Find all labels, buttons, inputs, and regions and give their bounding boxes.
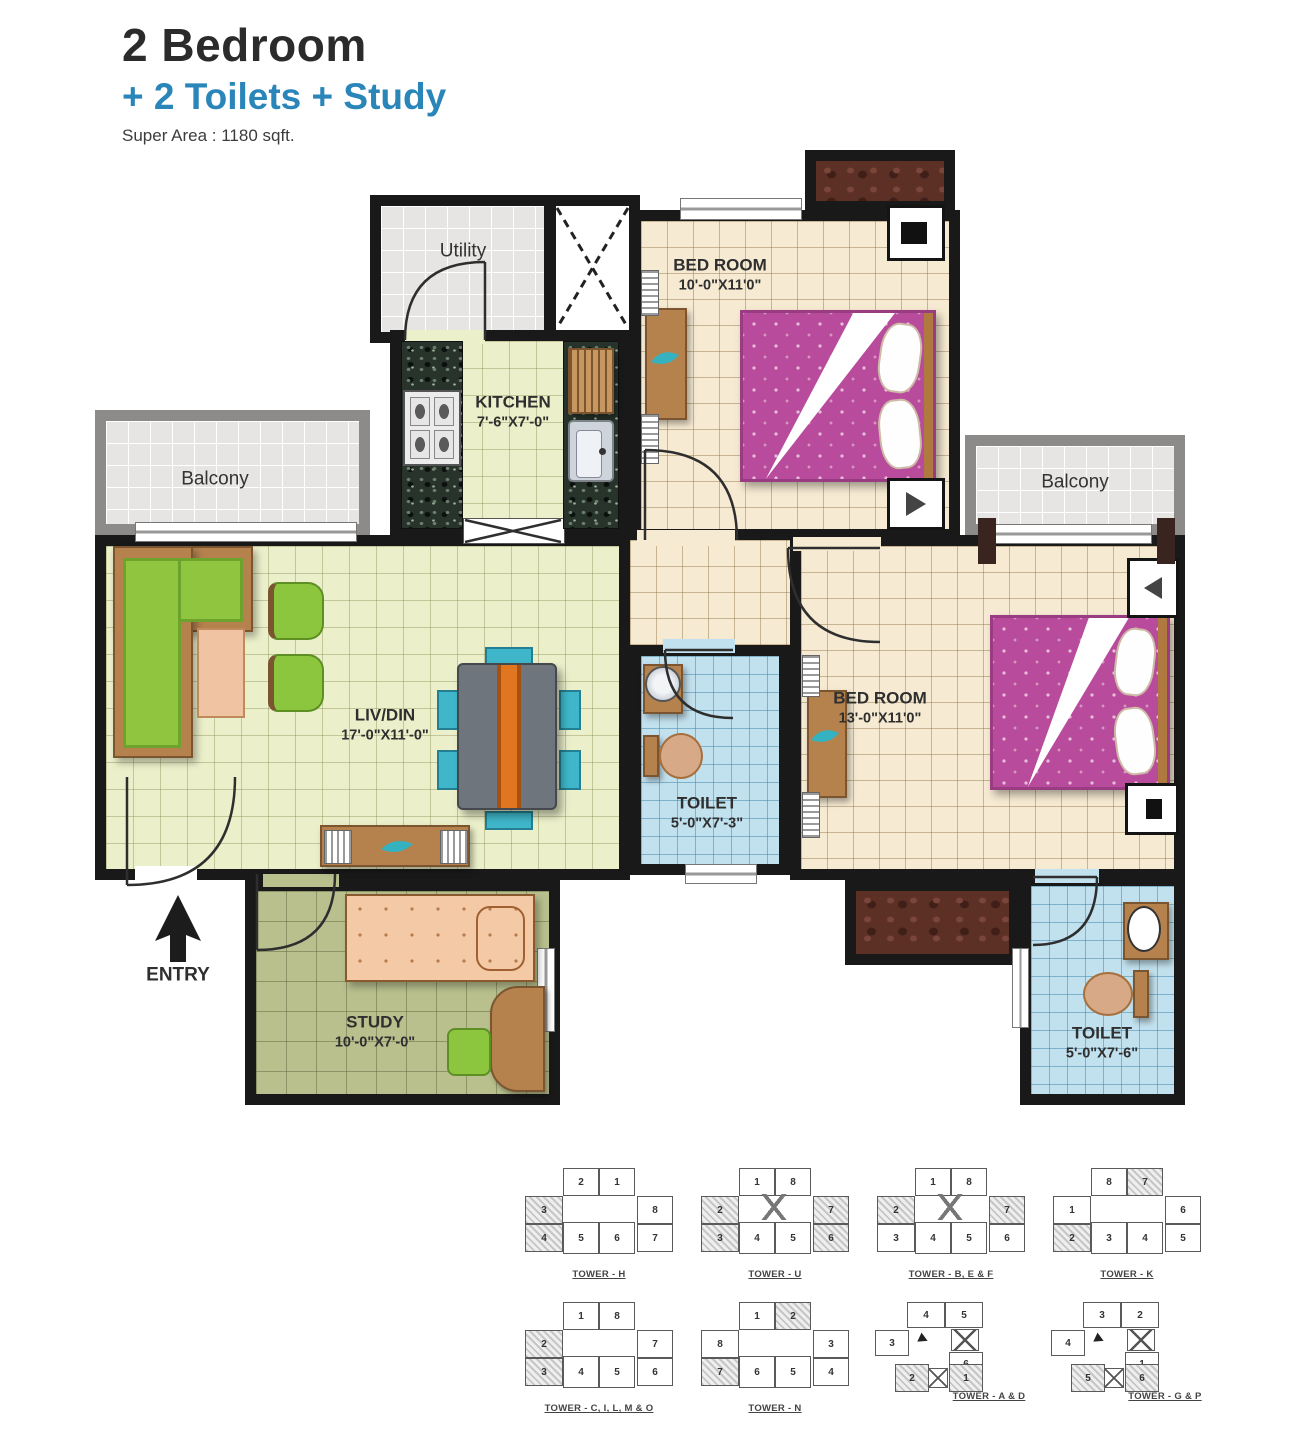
tower-unit: 2 [775,1302,811,1330]
dresser-shutter [641,270,659,316]
tower-unit: 4 [563,1356,599,1388]
pillow [1111,705,1159,777]
arrow-icon [1093,1333,1105,1346]
pillow [875,397,924,471]
tower-unit: 5 [599,1356,635,1388]
header: 2 Bedroom + 2 Toilets + Study Super Area… [122,18,446,146]
bedroom1-tv-unit [887,205,945,261]
tower-unit: 3 [525,1196,563,1224]
entry-label: ENTRY [146,964,210,989]
bedroom1-ac-unit [887,478,945,530]
study-label: STUDY 10'-0"X7'-0" [335,1012,415,1053]
ac-icon [1142,799,1162,819]
tower-unit: 2 [877,1196,915,1224]
study-bed [345,894,535,982]
room-utility [370,195,555,343]
burner-icon [410,430,430,459]
tower-diagram: 12876534TOWER - N [694,1300,856,1428]
bedroom2-tv-unit [1127,558,1179,618]
tower-canvas: 87123465 [1051,1168,1203,1264]
tower-unit: 7 [813,1196,849,1224]
tower-unit: 1 [739,1168,775,1196]
bed-headboard [1158,618,1167,787]
tower-unit: 1 [949,1364,983,1392]
tower-unit: 6 [989,1224,1025,1252]
tv-icon [1144,577,1162,599]
toilet1-cistern [643,735,659,777]
sofa-seat [123,558,181,748]
tower-unit: 5 [775,1356,811,1388]
faucet-icon [599,448,606,455]
bedroom2-label: BED ROOM 13'-0"X11'0" [833,688,927,729]
study-door-opening [263,874,339,887]
cabinet-shutter [324,830,352,864]
kitchen-sink [568,420,614,482]
cabinet-shutter [440,830,468,864]
toilet2-wc [1083,972,1133,1016]
tower-unit: 4 [739,1222,775,1254]
table-runner [497,665,521,808]
coffee-table [197,628,245,718]
tower-unit: 7 [989,1196,1025,1224]
kitchen-stove [403,390,461,466]
tower-unit: 6 [637,1358,673,1386]
tower-unit: 3 [1083,1302,1121,1328]
kitchen-opening [463,518,565,544]
tower-unit: 3 [875,1330,909,1356]
utility-label: Utility [440,240,486,265]
study-desk [490,986,545,1092]
bed-headboard [924,313,933,479]
tower-canvas: 21345687 [523,1168,675,1264]
tower-row-2: 18234576TOWER - C, I, L, M & O12876534TO… [518,1300,1224,1428]
toilet2-cistern [1133,970,1149,1018]
tower-unit: 1 [915,1168,951,1196]
tower-unit: 3 [701,1224,739,1252]
tower-diagram: 18234576TOWER - B, E & F [870,1166,1032,1294]
tower-unit: 1 [599,1168,635,1196]
balcony-left-label: Balcony [181,468,249,493]
tower-label: TOWER - K [1046,1269,1208,1280]
dining-chair [559,750,581,790]
tower-canvas: 18234576 [875,1168,1027,1264]
tower-diagram: 324156TOWER - G & P [1046,1300,1208,1428]
tower-diagram: 453621TOWER - A & D [870,1300,1032,1428]
stair-x-icon [951,1329,979,1351]
roof-cross-icon [743,1194,805,1220]
tower-unit: 5 [775,1222,811,1254]
balcony-left-sill [135,522,357,542]
toilet1-label: TOILET 5'-0"X7'-3" [671,793,743,834]
bedroom1-window [680,198,802,220]
toilet2-label: TOILET 5'-0"X7'-6" [1066,1023,1138,1064]
tower-unit: 2 [525,1330,563,1358]
wardrobe-shutter [802,792,820,838]
balcony-post [978,518,996,564]
tower-canvas: 18234576 [699,1168,851,1264]
arrow-icon [917,1333,929,1346]
bedroom1-label: BED ROOM 10'-0"X11'0" [673,255,767,296]
tower-diagram: 21345687TOWER - H [518,1166,680,1294]
burner-icon [410,397,430,426]
balcony-post [1157,518,1175,564]
kitchen-dish-rack [568,348,614,414]
balcony-right-sill [990,524,1152,544]
burner-icon [434,397,454,426]
tower-unit: 7 [701,1358,739,1386]
study-chair [447,1028,491,1076]
tower-label: TOWER - A & D [946,1391,1032,1402]
tower-unit: 8 [951,1168,987,1196]
brown-block-bottom [845,880,1020,965]
toilet2-door-opening [1035,869,1099,883]
tower-unit: 2 [563,1168,599,1196]
tower-canvas: 18234576 [523,1302,675,1398]
tower-unit: 1 [1053,1196,1091,1224]
tower-unit: 5 [1165,1224,1201,1252]
tower-unit: 4 [1051,1330,1085,1356]
bedroom1-door-opening [637,530,735,546]
tower-unit: 3 [813,1330,849,1358]
tower-unit: 7 [637,1330,673,1358]
tower-unit: 8 [701,1330,739,1358]
bedroom1-dresser [645,308,687,420]
toilet1-sink [645,666,681,702]
kitchen-label: KITCHEN 7'-6"X7'-0" [475,392,551,433]
tower-unit: 4 [1127,1222,1163,1254]
dining-table [457,663,557,810]
tower-unit: 4 [525,1224,563,1252]
tower-unit: 6 [813,1224,849,1252]
tower-unit: 2 [1121,1302,1159,1328]
tower-unit: 4 [813,1358,849,1386]
toilet1-door-opening [663,639,735,653]
wardrobe-shutter [802,655,820,697]
ac-icon [906,492,926,516]
tower-unit: 6 [599,1222,635,1254]
tower-unit: 4 [907,1302,945,1328]
tower-unit: 3 [525,1358,563,1386]
tower-unit: 2 [701,1196,739,1224]
pillow [874,320,925,395]
tower-canvas: 453621 [875,1302,1027,1398]
bedroom1-bed [740,310,936,482]
super-area: Super Area : 1180 sqft. [122,126,446,146]
dining-chair [485,811,533,830]
livdin-label: LIV/DIN 17'-0"X11'-0" [341,705,429,746]
floor-plan: Utility BED ROOM 10'-0"X11'0" KITCHEN 7'… [85,150,1210,1115]
burner-icon [434,430,454,459]
tower-label: TOWER - B, E & F [870,1269,1032,1280]
tower-label: TOWER - C, I, L, M & O [518,1403,680,1414]
dining-chair [559,690,581,730]
toilet1-window [685,864,757,884]
toilet2-sink [1127,906,1161,952]
tower-unit: 7 [637,1224,673,1252]
roof-cross-icon [919,1194,981,1220]
page-title: 2 Bedroom [122,18,446,72]
tower-unit: 6 [739,1356,775,1388]
tower-unit: 1 [563,1302,599,1330]
tower-diagram: 18234576TOWER - C, I, L, M & O [518,1300,680,1428]
entry-opening [135,866,197,884]
shaft [545,195,640,343]
stair-x-icon [928,1368,948,1388]
tower-unit: 8 [775,1168,811,1196]
tower-unit: 2 [1053,1224,1091,1252]
tower-unit: 1 [739,1302,775,1330]
pillow [1111,626,1159,698]
tower-diagram: 18234576TOWER - U [694,1166,856,1294]
tower-unit: 8 [1091,1168,1127,1196]
tower-unit: 6 [1165,1196,1201,1224]
bedroom2-bed [990,615,1170,790]
tower-diagram: 87123465TOWER - K [1046,1166,1208,1294]
page-subtitle: + 2 Toilets + Study [122,76,446,118]
tower-unit: 2 [895,1364,929,1392]
corridor [630,540,790,645]
stair-x-icon [1127,1329,1155,1351]
tower-unit: 5 [951,1222,987,1254]
dining-chair [437,690,459,730]
bedroom2-door-opening [793,537,881,551]
tower-unit: 5 [563,1222,599,1254]
tower-unit: 6 [1125,1364,1159,1392]
tower-label: TOWER - U [694,1269,856,1280]
tower-label: TOWER - G & P [1122,1391,1208,1402]
tower-unit: 7 [1127,1168,1163,1196]
armchair [268,582,324,640]
tower-row-1: 21345687TOWER - H18234576TOWER - U182345… [518,1166,1224,1294]
tower-unit: 3 [1091,1222,1127,1254]
tower-unit: 4 [915,1222,951,1254]
tower-unit: 3 [877,1224,915,1252]
dresser-shutter [641,414,659,464]
tower-label: TOWER - N [694,1403,856,1414]
tower-label: TOWER - H [518,1269,680,1280]
tower-unit: 5 [945,1302,983,1328]
tower-unit: 5 [1071,1364,1105,1392]
armchair [268,654,324,712]
bedroom2-ac-unit [1125,783,1179,835]
tower-unit: 8 [599,1302,635,1330]
balcony-right-label: Balcony [1041,471,1109,496]
study-pillow [476,906,525,970]
toilet1-wc [659,733,703,779]
toilet2-window [1012,948,1029,1028]
sink-basin [576,430,602,478]
dining-chair [437,750,459,790]
entry-arrow-icon [155,895,201,962]
tv-icon [901,222,931,244]
stair-x-icon [1104,1368,1124,1388]
tower-canvas: 12876534 [699,1302,851,1398]
brown-block-top [805,150,955,212]
tower-key-plans: 21345687TOWER - H18234576TOWER - U182345… [518,1166,1224,1434]
tower-unit: 8 [637,1196,673,1224]
tower-canvas: 324156 [1051,1302,1203,1398]
